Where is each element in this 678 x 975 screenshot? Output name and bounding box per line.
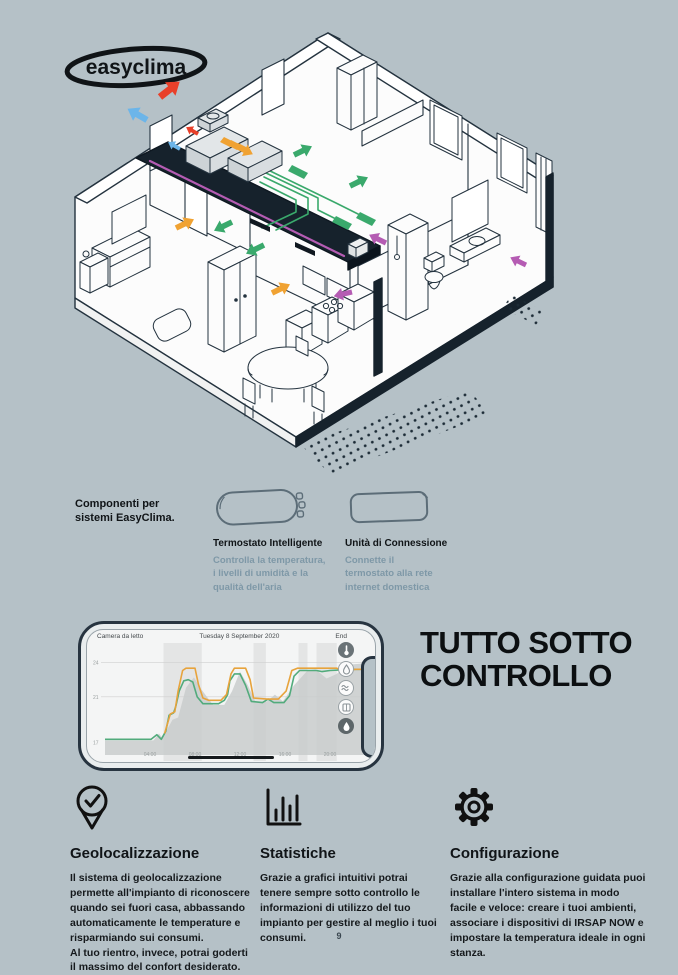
- feature-title: Statistiche: [260, 845, 442, 862]
- gear-icon: [450, 782, 498, 832]
- thermostat-device-image: [213, 485, 341, 529]
- window-icon[interactable]: [338, 699, 354, 715]
- room-label: Camera da letto: [97, 633, 143, 640]
- thermometer-icon[interactable]: [338, 642, 354, 658]
- shower: [388, 214, 428, 320]
- svg-text:24: 24: [93, 660, 99, 666]
- connection-unit-device: [345, 485, 435, 529]
- end-button[interactable]: End: [335, 633, 347, 640]
- component-connection-unit: Unità di Connessione Connette il termost…: [345, 485, 473, 594]
- wardrobe: [208, 246, 256, 352]
- inner-wall-dark-band: [374, 278, 382, 376]
- humidity-icon[interactable]: [338, 718, 354, 734]
- feature-title: Geolocalizzazione: [70, 845, 252, 862]
- phone-notch: [361, 656, 376, 758]
- connection-unit-image: [345, 485, 473, 529]
- component-name: Unità di Connessione: [345, 538, 473, 549]
- feature-geolocation: Geolocalizzazione Il sistema di geolocal…: [70, 782, 252, 975]
- bar-chart-icon: [260, 782, 304, 832]
- feature-body: Il sistema di geolocalizzazione permette…: [70, 871, 252, 975]
- bedroom-wardrobe: [337, 55, 377, 130]
- warm-air-arrow: [155, 75, 185, 104]
- feature-statistics: Statistiche Grazie a grafici intuitivi p…: [260, 782, 442, 946]
- thermostat-device: [213, 485, 309, 529]
- date-label: Tuesday 8 September 2020: [143, 633, 335, 640]
- feature-title: Configurazione: [450, 845, 646, 862]
- svg-text:16:00: 16:00: [279, 752, 292, 758]
- page-number: 9: [0, 931, 678, 941]
- temperature-chart: 24211704:0008:0012:0016:0020:00: [89, 643, 376, 761]
- component-description: Connette il termostato alla rete interne…: [345, 554, 473, 594]
- smartphone-mockup: Camera da letto Tuesday 8 September 2020…: [78, 621, 384, 771]
- page-title: TUTTO SOTTO CONTROLLO: [420, 627, 672, 693]
- house-illustration: [0, 0, 678, 480]
- feature-body: Grazie alla configurazione guidata puoi …: [450, 871, 646, 960]
- svg-text:21: 21: [93, 695, 99, 701]
- location-pin-check-icon: [70, 782, 114, 832]
- app-header: Camera da letto Tuesday 8 September 2020…: [97, 633, 347, 640]
- right-corner-dark-band: [546, 173, 553, 291]
- waves-icon[interactable]: [338, 680, 354, 696]
- cool-air-arrow: [124, 102, 151, 127]
- components-heading: Componenti per sistemi EasyClima.: [75, 497, 215, 526]
- svg-text:04:00: 04:00: [144, 752, 157, 758]
- home-indicator: [188, 756, 274, 760]
- component-name: Termostato Intelligente: [213, 538, 341, 549]
- svg-text:20:00: 20:00: [324, 752, 337, 758]
- brochure-page: easyclima: [0, 0, 678, 959]
- mode-buttons: [338, 642, 354, 734]
- svg-text:17: 17: [93, 741, 99, 747]
- component-description: Controlla la temperatura, i livelli di u…: [213, 554, 341, 594]
- water-drop-icon[interactable]: [338, 661, 354, 677]
- app-screen: Camera da letto Tuesday 8 September 2020…: [86, 629, 376, 763]
- component-thermostat: Termostato Intelligente Controlla la tem…: [213, 485, 341, 594]
